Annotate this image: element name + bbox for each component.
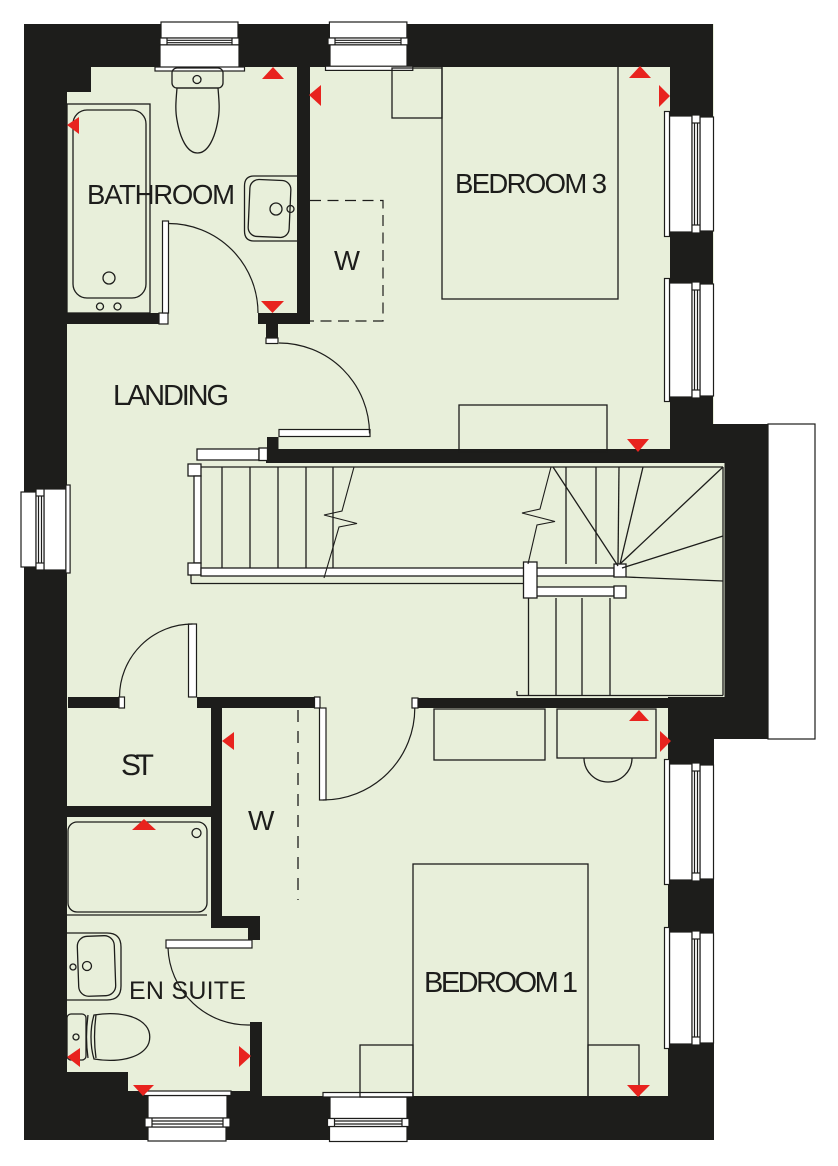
svg-text:LANDING: LANDING — [113, 380, 229, 412]
svg-text:ST: ST — [121, 749, 154, 782]
svg-text:BEDROOM 1: BEDROOM 1 — [424, 967, 578, 999]
svg-text:BATHROOM: BATHROOM — [87, 179, 235, 210]
svg-text:EN SUITE: EN SUITE — [129, 977, 246, 1005]
svg-text:BEDROOM 3: BEDROOM 3 — [455, 168, 607, 199]
svg-text:W: W — [248, 805, 275, 836]
svg-text:W: W — [334, 245, 360, 276]
